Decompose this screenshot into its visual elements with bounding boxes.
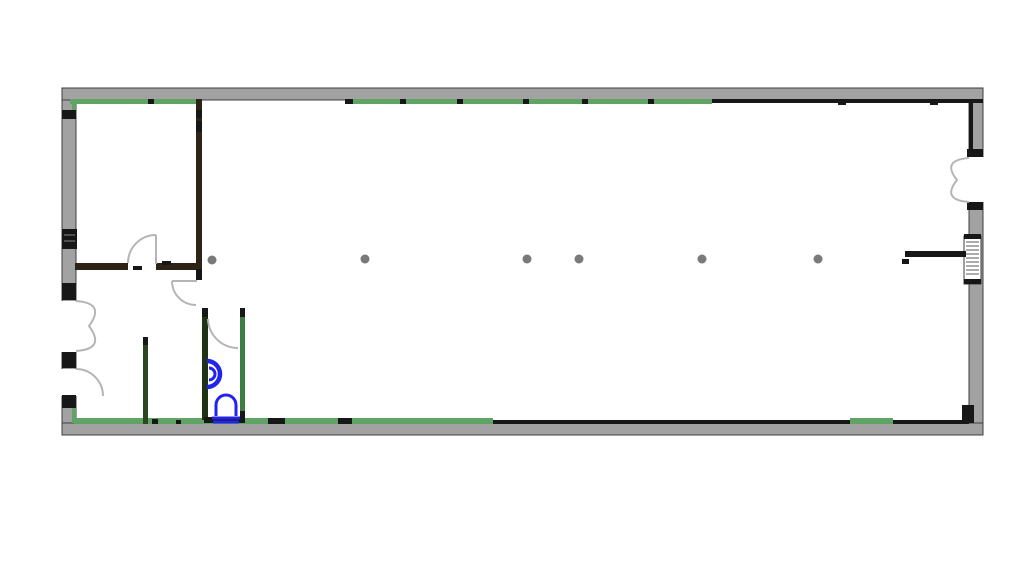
bottom-wall-joint-1 — [152, 419, 158, 424]
top-wall-joint-8 — [838, 99, 846, 105]
partition-joint-2 — [196, 121, 202, 132]
bottom-exterior-wall — [62, 423, 983, 435]
top-exterior-wall — [62, 88, 983, 100]
floor-plan-canvas — [0, 0, 1024, 575]
left-wall-cap-3 — [62, 352, 76, 368]
door-swing-room1 — [128, 235, 156, 264]
bottom-right-corner-notch — [962, 405, 974, 423]
bathroom-right-wall-cap-top — [240, 308, 245, 317]
partition-joint-1 — [196, 110, 202, 118]
right-wall-cap-2 — [967, 202, 983, 210]
right-door-opening — [964, 157, 988, 202]
toilet-fixture-bowl — [216, 395, 236, 416]
bottom-wall-inner-black-mid — [493, 420, 850, 424]
top-wall-joint-2 — [345, 99, 353, 104]
door-jamb-mark-a — [133, 266, 142, 270]
left-wall-inner-green-bottom — [72, 406, 76, 423]
top-wall-joint-1 — [148, 99, 154, 104]
column-5 — [698, 255, 707, 264]
top-wall-joint-3 — [400, 99, 406, 104]
bottom-wall-inner-black-right — [893, 420, 969, 424]
top-wall-joint-9 — [930, 99, 938, 105]
bottom-wall-joint-3 — [268, 418, 285, 424]
bottom-wall-joint-2 — [176, 420, 181, 424]
door-swing-left-single — [76, 369, 103, 396]
bottom-wall-joint-4 — [338, 418, 352, 424]
column-1 — [208, 256, 217, 265]
door-swing-room2 — [172, 281, 197, 305]
right-wall-inner-black-top — [969, 101, 973, 155]
column-4 — [575, 255, 584, 264]
left-wall-cap-4 — [62, 395, 76, 408]
left-wall-cap-1 — [62, 110, 76, 119]
bathroom-left-wall-cap — [202, 308, 208, 317]
top-wall-joint-7 — [648, 99, 654, 104]
left-wall-window — [62, 229, 77, 249]
door-jamb-mark-b — [162, 261, 171, 265]
urinal-fixture-inner — [209, 368, 215, 380]
stub-wall-cap — [143, 337, 148, 345]
top-wall-joint-4 — [457, 99, 463, 104]
upper-left-partition-horiz-a — [75, 263, 128, 270]
right-partition-stub-tick — [902, 259, 909, 264]
top-wall-joint-6 — [582, 99, 588, 104]
column-2 — [361, 255, 370, 264]
right-partition-stub — [905, 251, 966, 257]
left-single-door-opening — [58, 369, 78, 396]
stub-wall — [143, 337, 148, 424]
top-wall-inner-black-right — [712, 99, 983, 103]
right-wall-window-cap-top — [964, 234, 981, 239]
top-wall-inner-green-left — [70, 99, 196, 104]
door-swing-left-double — [76, 301, 95, 351]
floor-plan-drawing — [0, 0, 1024, 575]
top-wall-joint-5 — [523, 99, 529, 104]
partition-end-cap — [196, 269, 202, 280]
right-wall-window — [964, 236, 981, 284]
column-6 — [814, 255, 823, 264]
column-3 — [523, 255, 532, 264]
right-wall-window-cap-bot — [964, 279, 981, 284]
right-wall-cap-1 — [967, 149, 983, 157]
bottom-wall-inner-green-right — [850, 418, 893, 424]
left-double-door-opening — [58, 301, 78, 352]
door-swing-bathroom — [208, 319, 238, 348]
left-wall-cap-2 — [62, 283, 76, 300]
bathroom-right-wall — [240, 308, 245, 420]
bathroom-left-wall — [202, 308, 208, 420]
